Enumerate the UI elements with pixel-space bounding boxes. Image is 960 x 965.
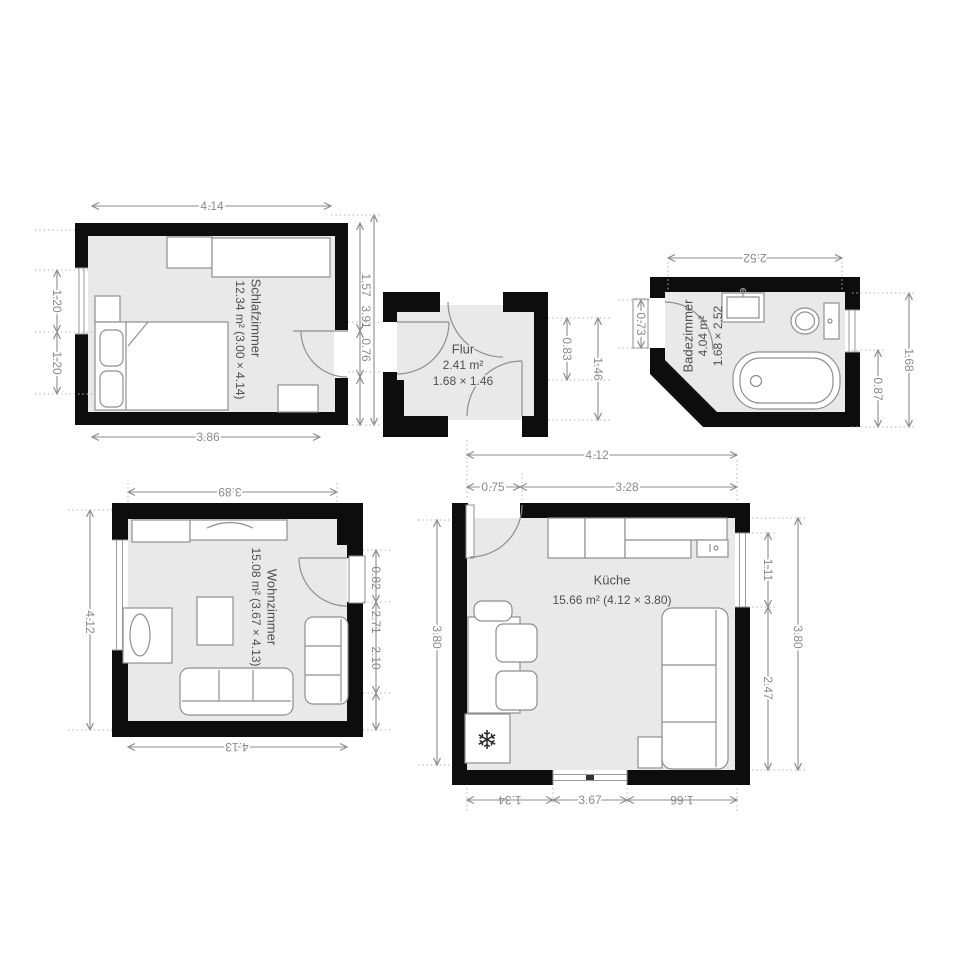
coffee-table	[197, 597, 233, 645]
dim-label: 1.68	[902, 348, 916, 372]
room-kueche: ❄ Küche 15.66 m² (4.12 × 3.80) 4.12 0.75…	[418, 440, 806, 812]
room-label: Küche	[594, 573, 631, 588]
kitchen-counter	[548, 518, 728, 558]
dim-label: 4.14	[200, 199, 224, 213]
dim-label: 1.20	[50, 289, 64, 313]
room-wohnzimmer: Wohnzimmer 15.08 m² (3.67 × 4.13) 3.89 4…	[68, 483, 392, 754]
wardrobe	[167, 237, 212, 268]
dim-label: 1.20	[50, 351, 64, 375]
room-size-label: 1.68 × 1.46	[433, 374, 494, 388]
dim-label: 4.13	[225, 740, 249, 754]
kitchen-sink	[697, 540, 728, 557]
dim-label: 0.73	[634, 312, 648, 336]
sideboard	[132, 520, 190, 542]
dim-label: 3.80	[791, 625, 805, 649]
dim-label: 0.87	[871, 377, 885, 401]
floor-plan-page: Schlafzimmer 12.34 m² (3.00 × 4.14) 4.14…	[0, 0, 960, 960]
room-flur: Flur 2.41 m² 1.68 × 1.46 0.83 1.46	[383, 292, 610, 437]
dim-label: 0.76	[359, 338, 373, 362]
room-label: Wohnzimmer	[265, 569, 280, 646]
pillow	[100, 371, 123, 407]
room-area-label: 2.41 m²	[443, 358, 484, 372]
room-size-label: 1.68 × 2.52	[711, 305, 725, 366]
dim-label: 2.47	[761, 676, 775, 700]
dim-label: 2.52	[743, 251, 767, 265]
dim-label: 1.11	[761, 559, 775, 582]
nightstand	[278, 385, 318, 412]
dim-label: 2.10	[369, 646, 383, 670]
chair	[496, 624, 537, 662]
dim-label: 3.91	[359, 305, 373, 329]
floor-plan-drawing: Schlafzimmer 12.34 m² (3.00 × 4.14) 4.14…	[0, 0, 960, 960]
dim-label: 2.71	[369, 610, 383, 634]
bathroom-window	[845, 310, 860, 352]
dim-label: 0.75	[481, 480, 505, 494]
room-label: Badezimmer	[681, 299, 696, 373]
dim-label: 3.80	[430, 625, 444, 649]
room-area-label: 15.08 m² (3.67 × 4.13)	[249, 547, 263, 666]
chair	[496, 671, 537, 710]
dim-label: 1.57	[359, 273, 373, 297]
bathtub	[733, 352, 840, 409]
door-leaf	[349, 556, 365, 603]
double-bed	[95, 322, 228, 410]
headboard-shelf	[95, 296, 120, 322]
sofa-two-seater	[305, 617, 348, 704]
dim-label: 4.12	[83, 610, 97, 634]
wardrobe-wide	[212, 238, 330, 277]
side-table	[638, 737, 662, 768]
dim-label: 0.83	[560, 337, 574, 361]
dim-label: 0.82	[369, 566, 383, 590]
dim-label: 3.89	[218, 485, 242, 499]
room-area-label: 15.66 m² (4.12 × 3.80)	[552, 593, 671, 607]
dim-label: 4.12	[585, 448, 609, 462]
kitchen-window-bottom	[553, 770, 627, 785]
sink	[722, 288, 764, 322]
room-schlafzimmer: Schlafzimmer 12.34 m² (3.00 × 4.14) 4.14…	[35, 199, 383, 444]
room-badezimmer: Badezimmer 4.04 m² 1.68 × 2.52 2.52 0.73…	[618, 251, 916, 427]
room-area-label: 12.34 m² (3.00 × 4.14)	[233, 280, 247, 399]
room-label: Flur	[452, 342, 475, 357]
armchair	[123, 608, 172, 663]
dim-label: 1.34	[498, 793, 522, 807]
snowflake-icon: ❄	[476, 725, 498, 755]
bedroom-window	[75, 268, 88, 334]
sofa-three-seater	[180, 668, 293, 715]
dim-label: 1.66	[670, 793, 694, 807]
dim-label: 1.46	[591, 357, 605, 381]
chair	[474, 601, 512, 621]
dim-label: 3.86	[196, 430, 220, 444]
fridge: ❄	[465, 714, 510, 763]
hall-dimensions: 0.83 1.46	[548, 318, 610, 420]
room-label: Schlafzimmer	[249, 279, 264, 358]
dim-label: 3.28	[615, 480, 639, 494]
room-area-label: 4.04 m²	[696, 316, 710, 357]
kitchen-window-right	[735, 533, 750, 607]
door-leaf	[466, 505, 474, 558]
pillow	[100, 330, 123, 366]
dim-label: 3.67	[578, 793, 602, 807]
